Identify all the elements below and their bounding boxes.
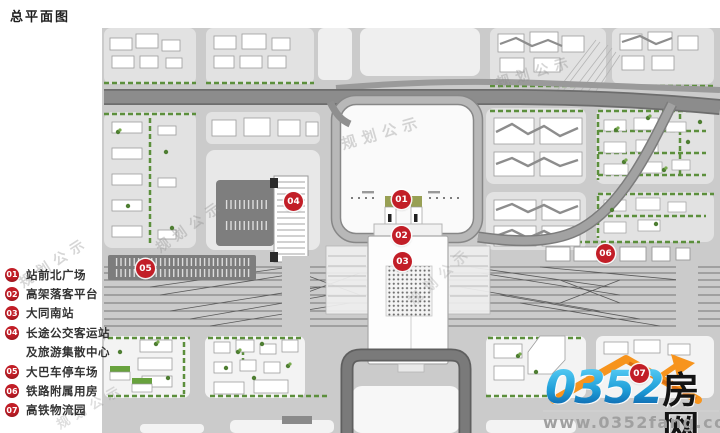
legend-item-02: 02 高架落客平台 xyxy=(5,284,110,303)
map-marker-01: 01 xyxy=(392,190,411,209)
legend-item-04: 04 长途公交客运站 xyxy=(5,323,110,342)
legend-number-badge: 06 xyxy=(5,384,19,398)
site-plan-page: 总平面图 规划公示 规划公示 规划公示 规划公示 规划公示 规划公示 01 站前… xyxy=(0,0,720,433)
coach-parking-strip xyxy=(108,255,256,280)
terminal-building xyxy=(274,176,308,262)
legend-label: 及旅游集散中心 xyxy=(26,344,110,360)
legend-label: 高架落客平台 xyxy=(26,286,98,302)
street-bridge-west xyxy=(282,256,310,334)
map-marker-02: 02 xyxy=(392,226,411,245)
legend-number-badge: 01 xyxy=(5,268,19,282)
legend-number-badge: 02 xyxy=(5,287,19,301)
street-bridge-east xyxy=(676,256,698,334)
legend-number-badge: 03 xyxy=(5,306,19,320)
legend-number-badge: 07 xyxy=(5,403,19,417)
map-marker-04: 04 xyxy=(284,192,303,211)
legend-label: 铁路附属用房 xyxy=(26,383,98,399)
site-logo: 0352 房网 www.0352fang.com xyxy=(543,348,719,433)
map-marker-06: 06 xyxy=(596,244,615,263)
legend-label: 站前北广场 xyxy=(26,267,86,283)
legend-item-04-line2: 及旅游集散中心 xyxy=(5,343,110,362)
station-roof-grid xyxy=(386,266,432,316)
legend-number-badge: 05 xyxy=(5,365,19,379)
legend-item-01: 01 站前北广场 xyxy=(5,265,110,284)
legend-number-badge: 04 xyxy=(5,326,19,340)
map-marker-07: 07 xyxy=(630,364,649,383)
logo-url: www.0352fang.com xyxy=(543,410,719,432)
map-marker-03: 03 xyxy=(393,252,412,271)
legend: 01 站前北广场 02 高架落客平台 03 大同南站 04 长途公交客运站 及旅… xyxy=(5,265,110,420)
north-plaza xyxy=(336,100,478,238)
terminal-parking-lot xyxy=(216,180,274,246)
legend-item-06: 06 铁路附属用房 xyxy=(5,381,110,400)
legend-item-03: 03 大同南站 xyxy=(5,304,110,323)
legend-label: 长途公交客运站 xyxy=(26,325,110,341)
map-marker-05: 05 xyxy=(136,259,155,278)
page-title: 总平面图 xyxy=(10,6,70,25)
legend-label: 大巴车停车场 xyxy=(26,364,98,380)
legend-label: 高铁物流园 xyxy=(26,402,86,418)
legend-item-07: 07 高铁物流园 xyxy=(5,401,110,420)
legend-item-05: 05 大巴车停车场 xyxy=(5,362,110,381)
legend-label: 大同南站 xyxy=(26,305,74,321)
